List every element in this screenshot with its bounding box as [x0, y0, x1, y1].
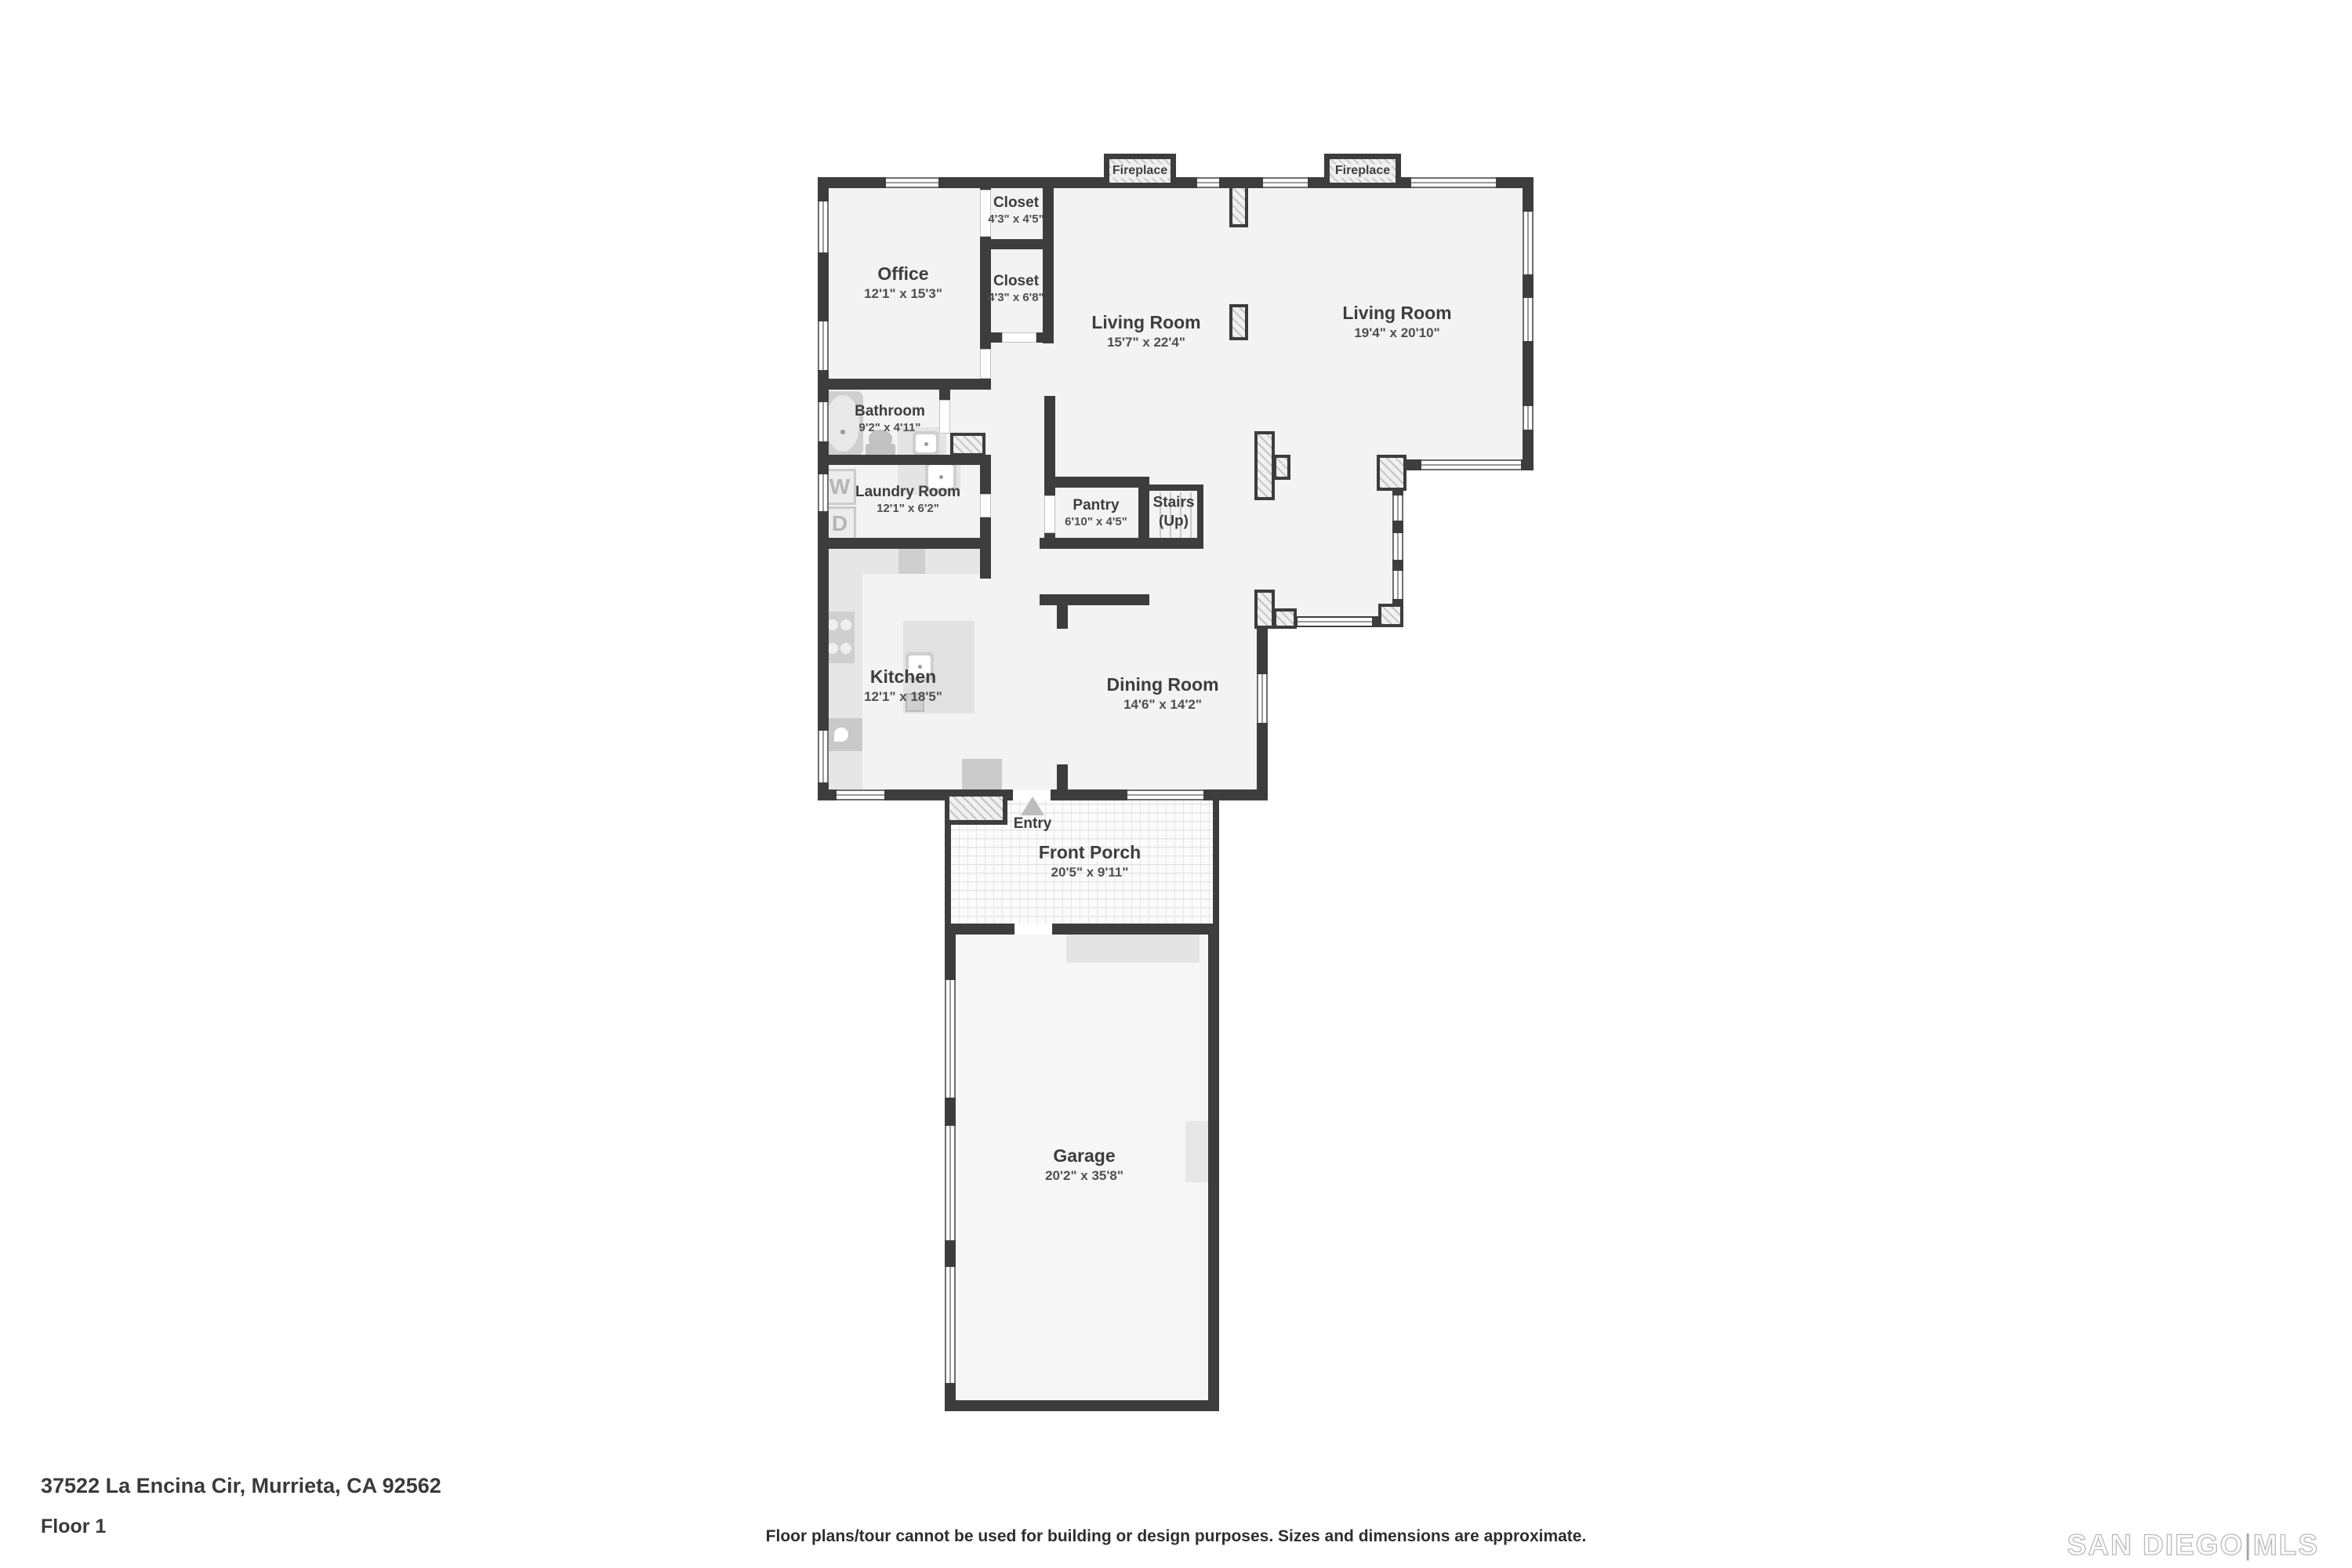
window: [1263, 177, 1308, 188]
room-label-bathroom: Bathroom9'2" x 4'11": [855, 402, 925, 436]
window: [1127, 789, 1203, 800]
wall: [1057, 764, 1068, 791]
room-label-kitchen: Kitchen12'1" x 18'5": [864, 666, 942, 705]
fireplace-1: Fireplace: [1104, 154, 1176, 188]
wall: [1043, 177, 1054, 343]
window: [818, 474, 829, 511]
room-label-closet-2: Closet4'3" x 6'8": [988, 272, 1044, 306]
window: [1392, 571, 1403, 599]
kitchen-cooktop: [898, 549, 925, 574]
refrigerator: [962, 759, 1002, 790]
window: [1392, 533, 1403, 560]
garage-door-block: [1066, 935, 1200, 963]
window: [818, 731, 829, 782]
floor-plan-page: W D: [0, 0, 2352, 1568]
window: [945, 980, 956, 1098]
closet-2-door: [1002, 332, 1036, 343]
wall: [1138, 477, 1149, 549]
window: [1421, 459, 1521, 470]
wall: [1057, 605, 1068, 629]
disclaimer-text: Floor plans/tour cannot be used for buil…: [0, 1527, 2352, 1546]
room-label-front-porch: Front Porch20'5" x 9'11": [1039, 841, 1141, 880]
fireplace-2: Fireplace: [1324, 154, 1401, 188]
mls-logo-part2: MLS: [2253, 1529, 2319, 1561]
room-label-pantry: Pantry6'10" x 4'5": [1065, 496, 1127, 530]
window: [818, 402, 829, 441]
window: [837, 789, 884, 800]
wall-column: [1378, 604, 1403, 627]
wall: [818, 379, 991, 390]
wall: [1044, 396, 1055, 482]
wall: [1040, 594, 1149, 605]
garage-side-block: [1185, 1121, 1208, 1182]
sliding-door: [1298, 618, 1372, 626]
kitchen-counter-left: [823, 574, 862, 790]
wall: [1208, 924, 1219, 1411]
window: [1257, 674, 1268, 723]
wall-column: [1229, 304, 1248, 340]
laundry-door: [980, 494, 991, 517]
wall: [1044, 477, 1149, 488]
wall: [945, 1400, 1219, 1411]
pantry-door: [1044, 495, 1055, 533]
room-label-entry: Entry: [1014, 815, 1052, 833]
mls-logo-separator: |: [2244, 1529, 2253, 1561]
window: [1411, 177, 1496, 188]
wall: [980, 549, 991, 579]
mls-logo-part1: SAN DIEGO: [2067, 1529, 2245, 1561]
wall: [945, 1098, 956, 1126]
wall: [980, 455, 991, 494]
washer-label: W: [829, 474, 850, 499]
window: [1197, 177, 1219, 188]
bath-chase: [950, 433, 985, 456]
wall: [945, 924, 956, 980]
porch-garage-door: [1014, 924, 1052, 935]
fireplace-1-label: Fireplace: [1111, 164, 1169, 178]
wall-column: [1229, 185, 1248, 227]
office-door: [980, 349, 991, 379]
room-label-stairs: Stairs(Up): [1153, 493, 1195, 531]
window: [1523, 406, 1534, 430]
window: [945, 1267, 956, 1383]
room-label-dining: Dining Room14'6" x 14'2": [1106, 673, 1218, 713]
window: [818, 201, 829, 252]
room-label-living-room-1: Living Room15'7" x 22'4": [1091, 311, 1200, 350]
wall-column: [1254, 431, 1275, 500]
entry-arrow-icon: [1021, 797, 1044, 815]
wall: [818, 538, 991, 549]
window: [886, 177, 938, 188]
window: [1523, 298, 1534, 341]
property-address: 37522 La Encina Cir, Murrieta, CA 92562: [41, 1474, 441, 1498]
wall: [939, 390, 950, 400]
wall: [1149, 485, 1203, 491]
room-label-office: Office12'1" x 15'3": [864, 263, 942, 302]
wall-column: [1273, 608, 1297, 629]
mls-logo: SAN DIEGO|MLS: [2067, 1529, 2319, 1562]
kitchen-sink: [823, 718, 862, 751]
wall: [985, 239, 1045, 249]
window: [1523, 212, 1534, 274]
dryer-label: D: [832, 511, 848, 536]
fireplace-2-label: Fireplace: [1334, 164, 1392, 178]
wall-column: [1273, 455, 1290, 480]
wall: [1213, 795, 1219, 927]
window: [818, 321, 829, 370]
wall: [980, 183, 991, 190]
wall: [1197, 485, 1203, 549]
wall: [945, 924, 1219, 935]
wall: [945, 1240, 956, 1267]
window: [1392, 495, 1403, 521]
room-label-living-room-2: Living Room19'4" x 20'10": [1342, 302, 1451, 341]
wall: [1040, 538, 1203, 549]
bathroom-door: [939, 400, 950, 434]
room-label-garage: Garage20'2" x 35'8": [1045, 1145, 1123, 1184]
wall-column: [1377, 455, 1406, 491]
room-label-closet-1: Closet4'3" x 4'5": [988, 194, 1044, 227]
room-label-laundry: Laundry Room12'1" x 6'2": [855, 483, 960, 517]
window: [945, 1126, 956, 1240]
porch-column: [945, 792, 1007, 825]
wall-column: [1254, 590, 1275, 629]
